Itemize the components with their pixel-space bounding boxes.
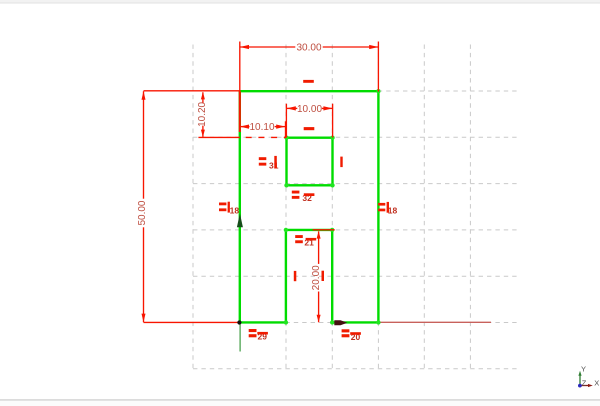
svg-text:10.00: 10.00 (297, 104, 322, 115)
svg-text:X: X (594, 379, 599, 388)
svg-text:18: 18 (230, 205, 240, 215)
svg-text:50.00: 50.00 (137, 200, 148, 225)
svg-text:Z: Z (582, 378, 587, 387)
svg-text:20.00: 20.00 (311, 265, 322, 290)
svg-text:Y: Y (581, 364, 586, 373)
svg-text:31: 31 (269, 161, 279, 171)
svg-text:10.20: 10.20 (197, 101, 208, 126)
svg-text:10.10: 10.10 (249, 122, 274, 133)
svg-text:18: 18 (388, 205, 398, 215)
svg-text:30.00: 30.00 (296, 42, 321, 53)
